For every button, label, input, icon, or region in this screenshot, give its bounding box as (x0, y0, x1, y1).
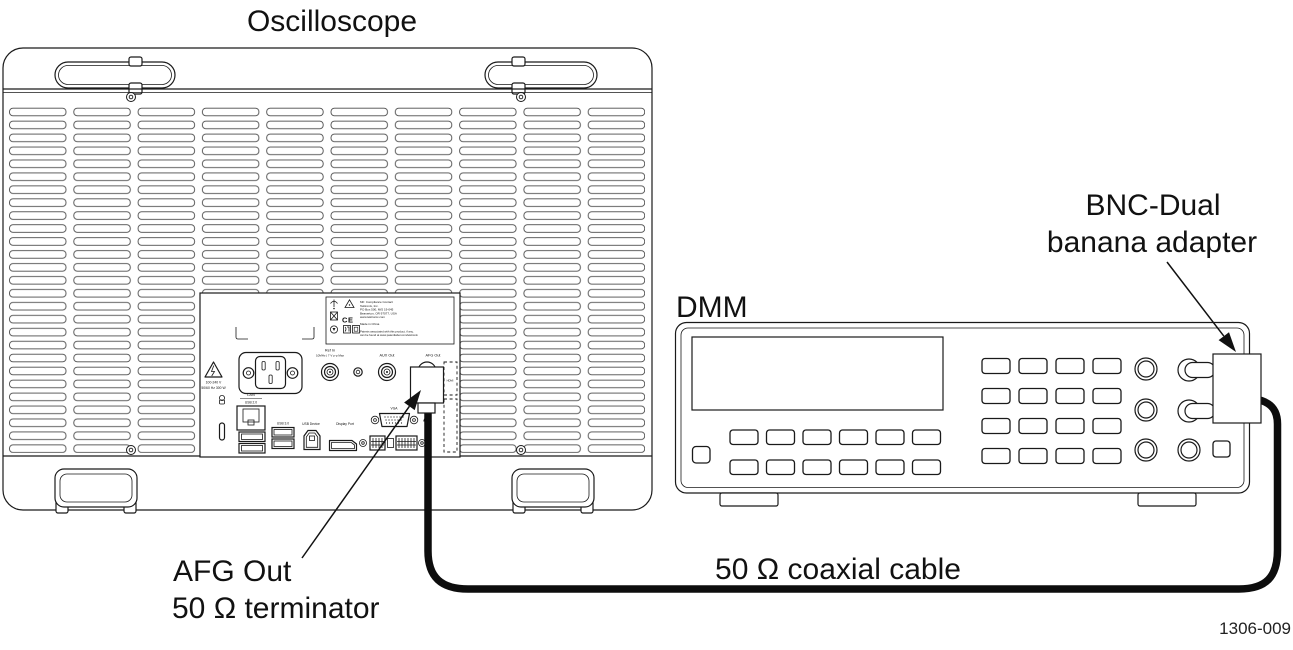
dmm-button (1056, 359, 1084, 374)
banana-plug-top (1185, 363, 1215, 378)
svg-text:Display Port: Display Port (336, 422, 354, 426)
terminator-label-line1: AFG Out (173, 555, 292, 588)
figure-number: 1306-009 (1219, 619, 1291, 638)
svg-text:50/60 Hz 300 W: 50/60 Hz 300 W (201, 386, 226, 390)
dmm-button (1019, 449, 1047, 464)
dmm-button (876, 460, 904, 475)
dmm-small-button (1213, 441, 1230, 457)
oscilloscope-rear-panel: CE Mfr. Compliance Contact Tektronix, In… (3, 48, 652, 513)
dmm-button (982, 359, 1010, 374)
svg-text:VGA: VGA (391, 407, 399, 411)
dmm-button (1093, 449, 1121, 464)
dmm-button (1019, 419, 1047, 434)
dmm-button (767, 460, 795, 475)
svg-text:can be found at www.patentlabe: can be found at www.patentlabel.com/tekt… (360, 333, 418, 337)
foot-right (512, 469, 594, 513)
svg-text:Made in China: Made in China (360, 322, 380, 326)
cable-label: 50 Ω coaxial cable (715, 553, 961, 586)
dmm-foot-right (1138, 493, 1196, 506)
dmm-button (1056, 389, 1084, 404)
svg-text:USB Device: USB Device (302, 422, 320, 426)
svg-text:www.tektronix.com: www.tektronix.com (360, 315, 386, 319)
dmm-button (730, 430, 758, 445)
svg-text:USB 2.0: USB 2.0 (245, 401, 257, 405)
dmm-button (982, 419, 1010, 434)
dmm-title: DMM (676, 291, 748, 324)
adapter-body (1213, 354, 1261, 423)
terminator-label-line2: 50 Ω terminator (172, 592, 380, 625)
dmm-button (1019, 359, 1047, 374)
oscilloscope-title: Oscilloscope (247, 5, 417, 38)
dmm-front-panel (676, 323, 1262, 507)
dmm-button (730, 460, 758, 475)
dmm-button (1056, 419, 1084, 434)
foot-left (55, 469, 137, 513)
dmm-button (803, 460, 831, 475)
dmm-power-button (693, 447, 711, 464)
dmm-button (982, 449, 1010, 464)
dmm-button (982, 389, 1010, 404)
svg-text:LAN: LAN (247, 393, 255, 397)
dmm-button (1093, 359, 1121, 374)
figure-connection-diagram: CE Mfr. Compliance Contact Tektronix, In… (0, 0, 1293, 650)
banana-plug-bottom (1185, 404, 1215, 419)
dmm-button (1093, 389, 1121, 404)
svg-text:AFG Out: AFG Out (426, 353, 442, 357)
diagram-canvas: CE Mfr. Compliance Contact Tektronix, In… (0, 0, 1293, 650)
dmm-button (767, 430, 795, 445)
svg-text:100-240 V: 100-240 V (206, 381, 222, 385)
dmm-button (840, 430, 868, 445)
svg-text:AUX Out: AUX Out (380, 353, 396, 357)
dmm-foot-left (720, 493, 778, 506)
hdmi-label: HDMI (447, 379, 454, 383)
adapter-label-line1: BNC-Dual (1085, 189, 1220, 222)
dmm-button (840, 460, 868, 475)
svg-text:10MHz | 7 V p-p Max: 10MHz | 7 V p-p Max (316, 353, 345, 357)
adapter-label-line2: banana adapter (1047, 226, 1257, 259)
svg-text:Ref In: Ref In (325, 349, 335, 353)
svg-text:USB 3.0: USB 3.0 (277, 422, 289, 426)
ce-mark: CE (342, 316, 354, 325)
dmm-button (913, 430, 941, 445)
dmm-button (1056, 449, 1084, 464)
dmm-button (1019, 389, 1047, 404)
dmm-button (1093, 419, 1121, 434)
dmm-button (876, 430, 904, 445)
dmm-button (803, 430, 831, 445)
dmm-button (913, 460, 941, 475)
